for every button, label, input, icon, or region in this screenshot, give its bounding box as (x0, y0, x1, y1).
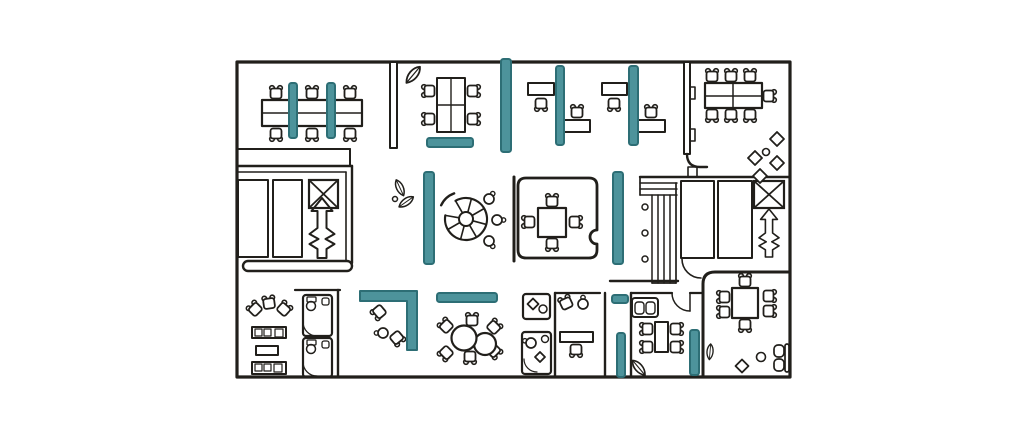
pod-spoke (461, 226, 465, 240)
chair (764, 290, 777, 303)
chair (764, 305, 777, 318)
chair-seat (467, 316, 478, 326)
pod-spoke (468, 199, 472, 213)
chair (389, 330, 407, 348)
chair (522, 216, 535, 229)
desk (560, 332, 593, 342)
chair (546, 194, 559, 207)
teal-desk-divider (556, 66, 564, 145)
chair-seat (726, 110, 737, 120)
chair (725, 110, 738, 123)
chair-seat (248, 302, 263, 317)
chair-seat (468, 86, 478, 97)
teal-partition (613, 172, 623, 264)
chair-seat (425, 114, 435, 125)
door-arc (303, 322, 317, 336)
chair-seat (571, 345, 582, 355)
door-arc (672, 293, 690, 311)
chair-seat (745, 110, 756, 120)
chair-seat (707, 72, 718, 82)
wall-curve (687, 154, 707, 167)
chair-seat (643, 342, 653, 353)
table (732, 288, 758, 318)
closet (718, 181, 752, 258)
door-jamb (690, 129, 695, 141)
chair-seat (570, 217, 580, 228)
stool-seat (526, 338, 536, 348)
armchair (774, 359, 784, 371)
pouf (770, 132, 784, 146)
chair (640, 323, 653, 336)
sink (264, 329, 271, 336)
chair (422, 85, 435, 98)
stair-post (642, 256, 648, 262)
chair (546, 239, 559, 252)
chair (557, 294, 574, 311)
pod-spoke (448, 223, 460, 230)
plant (706, 344, 713, 360)
teal-partition (501, 59, 511, 152)
chair (608, 99, 621, 112)
chair-seat (372, 304, 387, 319)
chair-seat (307, 129, 318, 139)
lounge-stool (374, 328, 388, 338)
stair-post (642, 204, 648, 210)
chair-seat (307, 89, 318, 99)
chair (306, 129, 319, 142)
chair-seat (547, 197, 558, 207)
chair (306, 86, 319, 99)
stool (484, 236, 495, 249)
chair-seat (465, 352, 476, 362)
teal-credenza (427, 138, 473, 147)
chair (262, 295, 276, 309)
round-pod-table (441, 193, 487, 240)
chair-seat (764, 91, 774, 102)
chair (422, 113, 435, 126)
teal-partition (424, 172, 434, 264)
chair-seat (389, 330, 404, 345)
chair-seat (646, 108, 657, 118)
chair-seat (271, 129, 282, 139)
chair-seat (745, 72, 756, 82)
chair (270, 129, 283, 142)
toilet (307, 302, 316, 311)
chair (744, 110, 757, 123)
coffee-table (256, 346, 278, 355)
chair (570, 216, 583, 229)
sink (322, 341, 329, 348)
duct-stub (688, 167, 697, 177)
stool-seat (484, 236, 494, 246)
chair-seat (707, 110, 718, 120)
pod-spoke (473, 221, 487, 225)
chair (276, 299, 294, 317)
chair-seat (671, 324, 681, 335)
chair (717, 291, 730, 304)
chair-seat (671, 342, 681, 353)
chair (706, 110, 719, 123)
chair-seat (740, 277, 751, 287)
chair (344, 129, 357, 142)
stool (484, 191, 495, 204)
pod-segment (441, 193, 454, 205)
pod-hub (459, 212, 473, 226)
teal-l-partition (360, 291, 417, 350)
chair (468, 85, 481, 98)
chair-seat (643, 324, 653, 335)
stair-post (642, 230, 648, 236)
chair (466, 313, 479, 326)
chair (245, 299, 263, 317)
booth-chair (528, 299, 539, 310)
chair (464, 352, 477, 365)
floor-plan-canvas (0, 0, 1024, 437)
chair-seat (764, 306, 774, 317)
plant (397, 194, 415, 210)
chair-seat (547, 239, 558, 249)
plant (630, 358, 648, 378)
chair-seat (345, 89, 356, 99)
stair-arrow (759, 209, 779, 257)
teal-desk-divider (289, 83, 297, 138)
closet (238, 180, 268, 257)
door-arc (303, 362, 317, 376)
chair-seat (439, 345, 454, 360)
chair-seat (345, 129, 356, 139)
chair (436, 316, 454, 334)
chair (739, 320, 752, 333)
chair (640, 341, 653, 354)
stool-seat (578, 299, 588, 309)
booth-table (539, 305, 547, 313)
plant-pot (393, 197, 398, 202)
chair-seat (276, 302, 291, 317)
teal-desk-divider (629, 66, 638, 145)
door-arc (682, 259, 701, 278)
toilet (307, 345, 316, 354)
booth-chair (535, 352, 545, 362)
chair-seat (609, 99, 620, 109)
wall-divider-topleft (390, 62, 397, 148)
chair-seat (764, 291, 774, 302)
pod-ring (445, 198, 487, 240)
closet (273, 180, 302, 257)
stool-seat (484, 194, 494, 204)
sink (264, 364, 271, 371)
chair-seat (439, 319, 454, 334)
pouf (736, 360, 749, 373)
chair (717, 306, 730, 319)
sink (322, 298, 329, 305)
sofa-cushion (635, 302, 644, 314)
meeting-table (538, 208, 566, 237)
stool-seat (378, 328, 388, 338)
chair (468, 113, 481, 126)
booth-stool (523, 338, 536, 348)
chair (739, 274, 752, 287)
chair (369, 304, 387, 322)
desk (528, 83, 554, 95)
pod-spoke (470, 225, 477, 237)
wall-divider-topright (684, 62, 690, 154)
desk (602, 83, 627, 95)
chair-seat (726, 72, 737, 82)
stool (492, 215, 506, 225)
plant (393, 178, 407, 197)
side-table (757, 353, 766, 362)
pouf (770, 156, 784, 170)
chair (645, 105, 658, 118)
teal-desk-divider (327, 83, 335, 138)
desk (563, 120, 590, 132)
sink (255, 329, 262, 336)
elevator-shaft (754, 181, 784, 208)
chair (270, 86, 283, 99)
door-arc (524, 359, 537, 372)
closet (681, 181, 714, 258)
stool (578, 295, 588, 309)
teal-partition (617, 333, 625, 377)
pod-spoke (472, 209, 484, 216)
chair (706, 69, 719, 82)
booth-table (542, 336, 549, 343)
teal-partition (690, 330, 699, 375)
desk (638, 120, 665, 132)
chair-seat (425, 86, 435, 97)
chair (671, 341, 684, 354)
chair-seat (263, 298, 275, 309)
chair-seat (468, 114, 478, 125)
chair-seat (271, 89, 282, 99)
door-jamb (690, 87, 695, 99)
chair (725, 69, 738, 82)
teal-credenza (612, 295, 628, 303)
chair-seat (720, 307, 730, 318)
chair (436, 345, 454, 363)
chair-seat (536, 99, 547, 109)
chair-seat (525, 217, 535, 228)
chair (570, 345, 583, 358)
armchair-back (785, 344, 789, 372)
core-left-bottom-wall (243, 261, 352, 271)
pod-spoke (456, 201, 463, 213)
armchair (774, 345, 784, 357)
teal-credenza (437, 293, 497, 302)
chair (535, 99, 548, 112)
pod-spoke (445, 215, 459, 217)
side-table (763, 149, 770, 156)
chair (744, 69, 757, 82)
floor-plan (0, 0, 1024, 437)
sofa-cushion (646, 302, 655, 314)
stool-seat (492, 215, 502, 225)
chair-seat (720, 292, 730, 303)
chair (764, 90, 777, 103)
sink (275, 329, 283, 337)
table-lobe (452, 326, 477, 351)
chair-seat (740, 320, 751, 330)
chair (571, 105, 584, 118)
table (655, 322, 668, 352)
elevator-shaft (309, 180, 338, 208)
chair (344, 86, 357, 99)
pouf (748, 151, 762, 165)
sink (255, 364, 262, 371)
sink (274, 364, 282, 372)
chair-seat (572, 108, 583, 118)
chair (671, 323, 684, 336)
plant (403, 64, 423, 85)
